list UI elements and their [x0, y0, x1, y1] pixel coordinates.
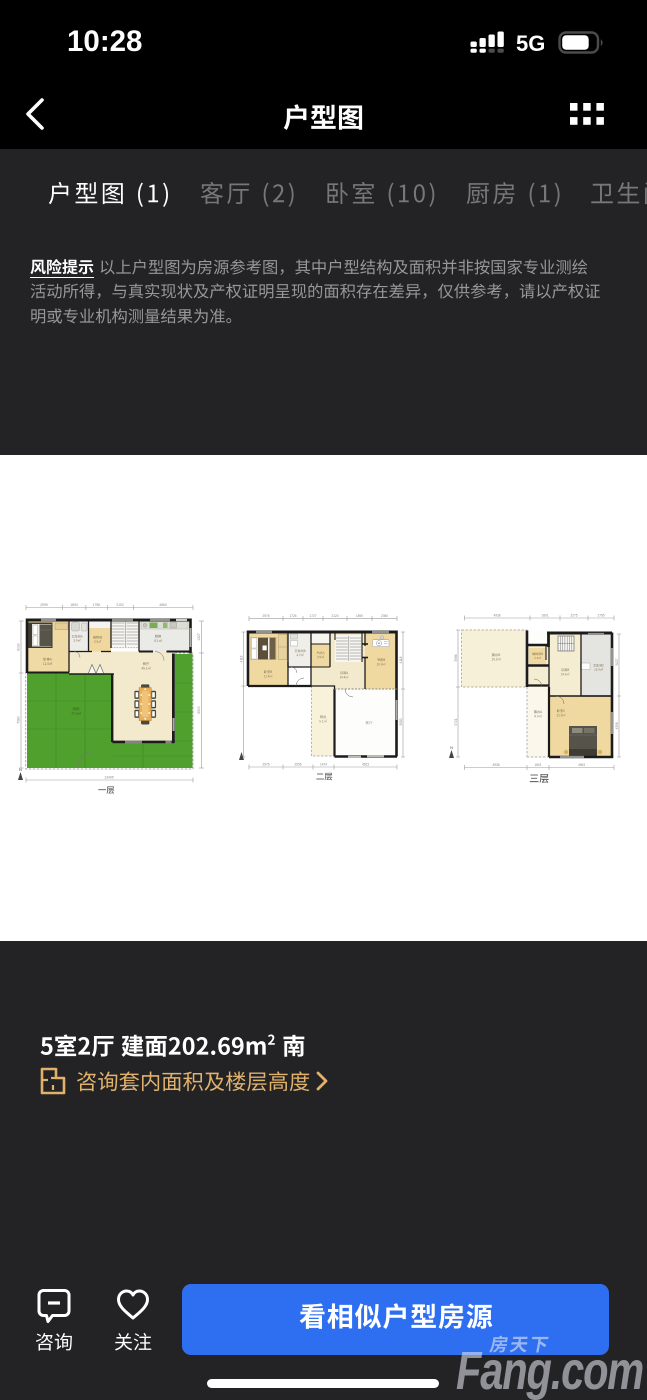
svg-text:2999: 2999: [40, 603, 48, 607]
svg-text:1726: 1726: [289, 614, 296, 618]
svg-text:2102: 2102: [116, 603, 124, 607]
svg-text:2120: 2120: [331, 614, 338, 618]
svg-text:4523: 4523: [362, 763, 369, 767]
svg-text:2976: 2976: [262, 763, 269, 767]
svg-text:4938: 4938: [492, 763, 499, 767]
svg-text:7380: 7380: [17, 716, 21, 724]
svg-text:4938: 4938: [493, 614, 500, 618]
svg-text:N: N: [450, 746, 453, 750]
svg-text:2080: 2080: [381, 614, 388, 618]
svg-text:1780: 1780: [93, 603, 101, 607]
svg-text:2976: 2976: [262, 614, 269, 618]
svg-text:13405: 13405: [104, 776, 114, 780]
svg-text:5900: 5900: [197, 706, 201, 714]
svg-text:4118: 4118: [399, 656, 403, 663]
svg-text:1801: 1801: [541, 614, 548, 618]
svg-text:2275: 2275: [570, 614, 577, 618]
svg-text:1894: 1894: [70, 603, 78, 607]
svg-text:1727: 1727: [309, 614, 316, 618]
svg-text:4118: 4118: [240, 655, 244, 662]
svg-text:1590: 1590: [356, 614, 363, 618]
svg-text:N: N: [19, 767, 22, 772]
svg-text:5000: 5000: [399, 718, 403, 725]
svg-text:4963: 4963: [578, 763, 585, 767]
svg-text:1327: 1327: [197, 633, 201, 641]
svg-text:4860: 4860: [159, 603, 167, 607]
svg-text:3586: 3586: [454, 654, 458, 661]
svg-text:1801: 1801: [534, 763, 541, 767]
svg-text:2056: 2056: [294, 763, 301, 767]
svg-text:5721: 5721: [454, 718, 458, 725]
svg-text:4358: 4358: [615, 722, 619, 729]
svg-text:6030: 6030: [17, 643, 21, 651]
svg-text:5027: 5027: [615, 658, 619, 665]
svg-text:1474: 1474: [320, 763, 327, 767]
svg-text:2795: 2795: [597, 614, 604, 618]
